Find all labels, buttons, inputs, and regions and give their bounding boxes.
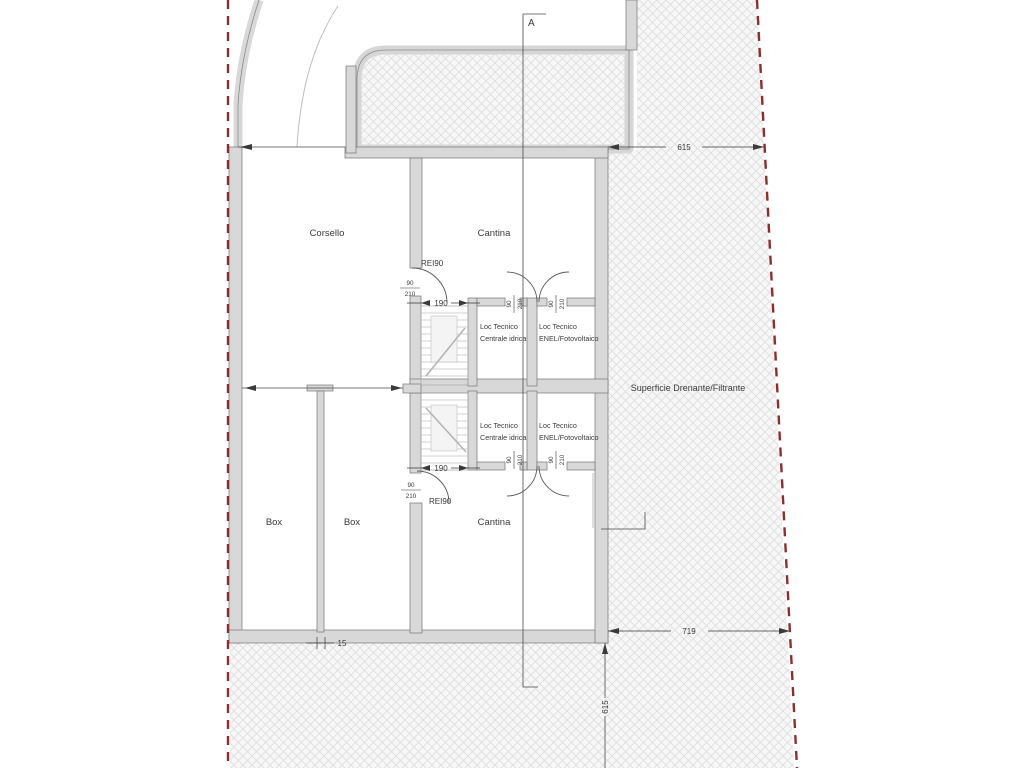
label-tech2-enel-l1: Loc Tecnico [539, 421, 577, 430]
island-top-stub-wall [626, 0, 637, 50]
label-tech1-water-l2: Centrale idrica [480, 334, 526, 343]
label-tech2-water-l2: Centrale idrica [480, 433, 526, 442]
wall-tech1-divider [527, 298, 537, 386]
label-tech1-water-l1: Loc Tecnico [480, 322, 518, 331]
wall-top [345, 147, 608, 158]
fire-rating-top: REI90 [421, 259, 444, 268]
label-box-left: Box [266, 517, 283, 528]
label-cantina-bottom: Cantina [478, 517, 511, 528]
floor-plan-canvas: 615 719 615 190 190 15 90 210 90 210 [0, 0, 1024, 768]
plan-page: 615 719 615 190 190 15 90 210 90 210 [0, 0, 1024, 768]
label-box-right: Box [344, 517, 361, 528]
wall-box-cantina [410, 503, 422, 633]
svg-text:210: 210 [517, 298, 524, 309]
dim-615-side: 615 [601, 700, 610, 714]
label-tech2-water-l1: Loc Tecnico [480, 421, 518, 430]
dim-190-bottom: 190 [434, 464, 448, 473]
wall-left [229, 147, 242, 643]
svg-text:90: 90 [406, 280, 414, 287]
svg-text:210: 210 [405, 291, 416, 298]
svg-text:90: 90 [548, 300, 555, 308]
wall-corsello-cantina [410, 158, 422, 268]
svg-text:90: 90 [407, 482, 415, 489]
label-tech1-enel-l2: ENEL/Fotovoltaico [539, 334, 599, 343]
svg-text:210: 210 [559, 298, 566, 309]
wall-box-stub [403, 384, 421, 393]
wall-box-divider [317, 391, 324, 632]
label-site-surface: Superficie Drenante/Filtrante [631, 383, 746, 393]
label-tech2-enel-l2: ENEL/Fotovoltaico [539, 433, 599, 442]
label-corsello: Corsello [310, 228, 345, 239]
wall-middle-band [410, 379, 608, 393]
svg-text:210: 210 [406, 493, 417, 500]
dim-615-top: 615 [677, 143, 691, 152]
dim-719: 719 [682, 627, 696, 636]
fire-rating-bottom: REI90 [429, 497, 452, 506]
label-tech1-enel-l1: Loc Tecnico [539, 322, 577, 331]
dim-15: 15 [338, 639, 347, 648]
section-marker-a: A [528, 18, 535, 29]
dim-190-top: 190 [434, 299, 448, 308]
label-cantina-top: Cantina [478, 228, 511, 239]
svg-text:210: 210 [517, 454, 524, 465]
wall-tech2-left [468, 391, 477, 470]
ramp [238, 0, 338, 150]
svg-text:90: 90 [506, 300, 513, 308]
svg-text:210: 210 [559, 454, 566, 465]
hatched-island [357, 0, 637, 149]
wall-right [595, 147, 608, 643]
wall-tech1-left [468, 298, 477, 386]
wall-ramp-side [346, 66, 356, 153]
svg-text:90: 90 [548, 456, 555, 464]
svg-text:90: 90 [506, 456, 513, 464]
ramp-lane-guide [297, 6, 338, 147]
wall-tech2-divider [527, 391, 537, 470]
